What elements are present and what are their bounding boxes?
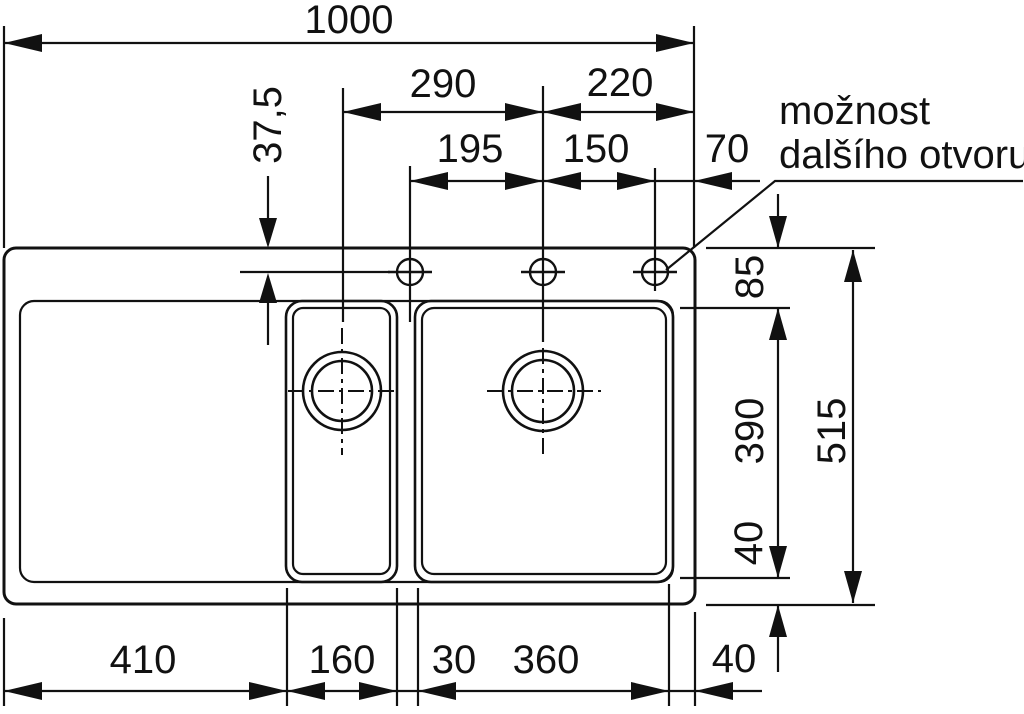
arrow-195-left	[410, 172, 448, 190]
label-360: 360	[513, 638, 580, 682]
top-dimension-labels: 1000 290 220 195 150 70 37,5	[246, 0, 749, 171]
label-40-bottom: 40	[712, 637, 757, 681]
sink-rim-inner-edge	[20, 301, 673, 582]
arrow-410-left	[4, 682, 42, 700]
arrow-390-down	[769, 546, 787, 578]
arrow-150-left	[543, 172, 581, 190]
arrow-220-right	[656, 103, 694, 121]
arrow-360-left	[418, 682, 456, 700]
arrow-195-right	[505, 172, 543, 190]
arrow-360-right	[631, 682, 669, 700]
arrow-1000-right	[656, 34, 694, 52]
label-overall-width: 1000	[305, 0, 394, 42]
label-515: 515	[810, 398, 854, 465]
arrow-70-right	[694, 172, 732, 190]
drain-centerlines	[288, 328, 601, 455]
arrow-150-right	[617, 172, 655, 190]
label-30: 30	[432, 638, 477, 682]
label-220: 220	[587, 61, 654, 105]
arrow-220-left	[543, 103, 581, 121]
arrow-390-up	[769, 308, 787, 340]
arrow-1000-left	[4, 34, 42, 52]
arrow-515-up	[844, 250, 862, 282]
arrow-515-down	[844, 571, 862, 603]
note-text-line2: dalšího otvoru	[779, 133, 1024, 177]
label-40-right: 40	[727, 521, 771, 566]
label-160: 160	[309, 638, 376, 682]
bottom-dimension-labels: 410 160 30 360 40	[110, 637, 757, 682]
label-390: 390	[728, 398, 772, 465]
arrow-85-down	[769, 216, 787, 248]
label-195: 195	[437, 127, 504, 171]
arrow-160-right	[359, 682, 397, 700]
arrow-410-right	[249, 682, 287, 700]
technical-drawing-sink-dimensions: 1000 290 220 195 150 70 37,5 možnost dal…	[0, 0, 1024, 714]
sink-body	[4, 248, 695, 604]
arrow-37-up	[259, 273, 277, 303]
label-290: 290	[410, 62, 477, 106]
right-dimension-labels: 85 390 40 515	[727, 255, 854, 566]
note-text-line1: možnost	[779, 89, 930, 133]
label-37-5: 37,5	[246, 86, 290, 164]
drawing-svg: 1000 290 220 195 150 70 37,5 možnost dal…	[0, 0, 1024, 714]
arrow-40r-up	[769, 605, 787, 637]
arrow-290-left	[343, 103, 381, 121]
label-85: 85	[728, 255, 772, 300]
label-410: 410	[110, 638, 177, 682]
arrow-40b-right	[695, 682, 733, 700]
arrow-37-down	[259, 218, 277, 248]
label-150: 150	[563, 127, 630, 171]
label-70: 70	[705, 127, 750, 171]
note-leader-line	[666, 181, 1023, 270]
arrow-160-left	[287, 682, 325, 700]
arrow-290-right	[505, 103, 543, 121]
faucet-holes	[388, 259, 677, 285]
